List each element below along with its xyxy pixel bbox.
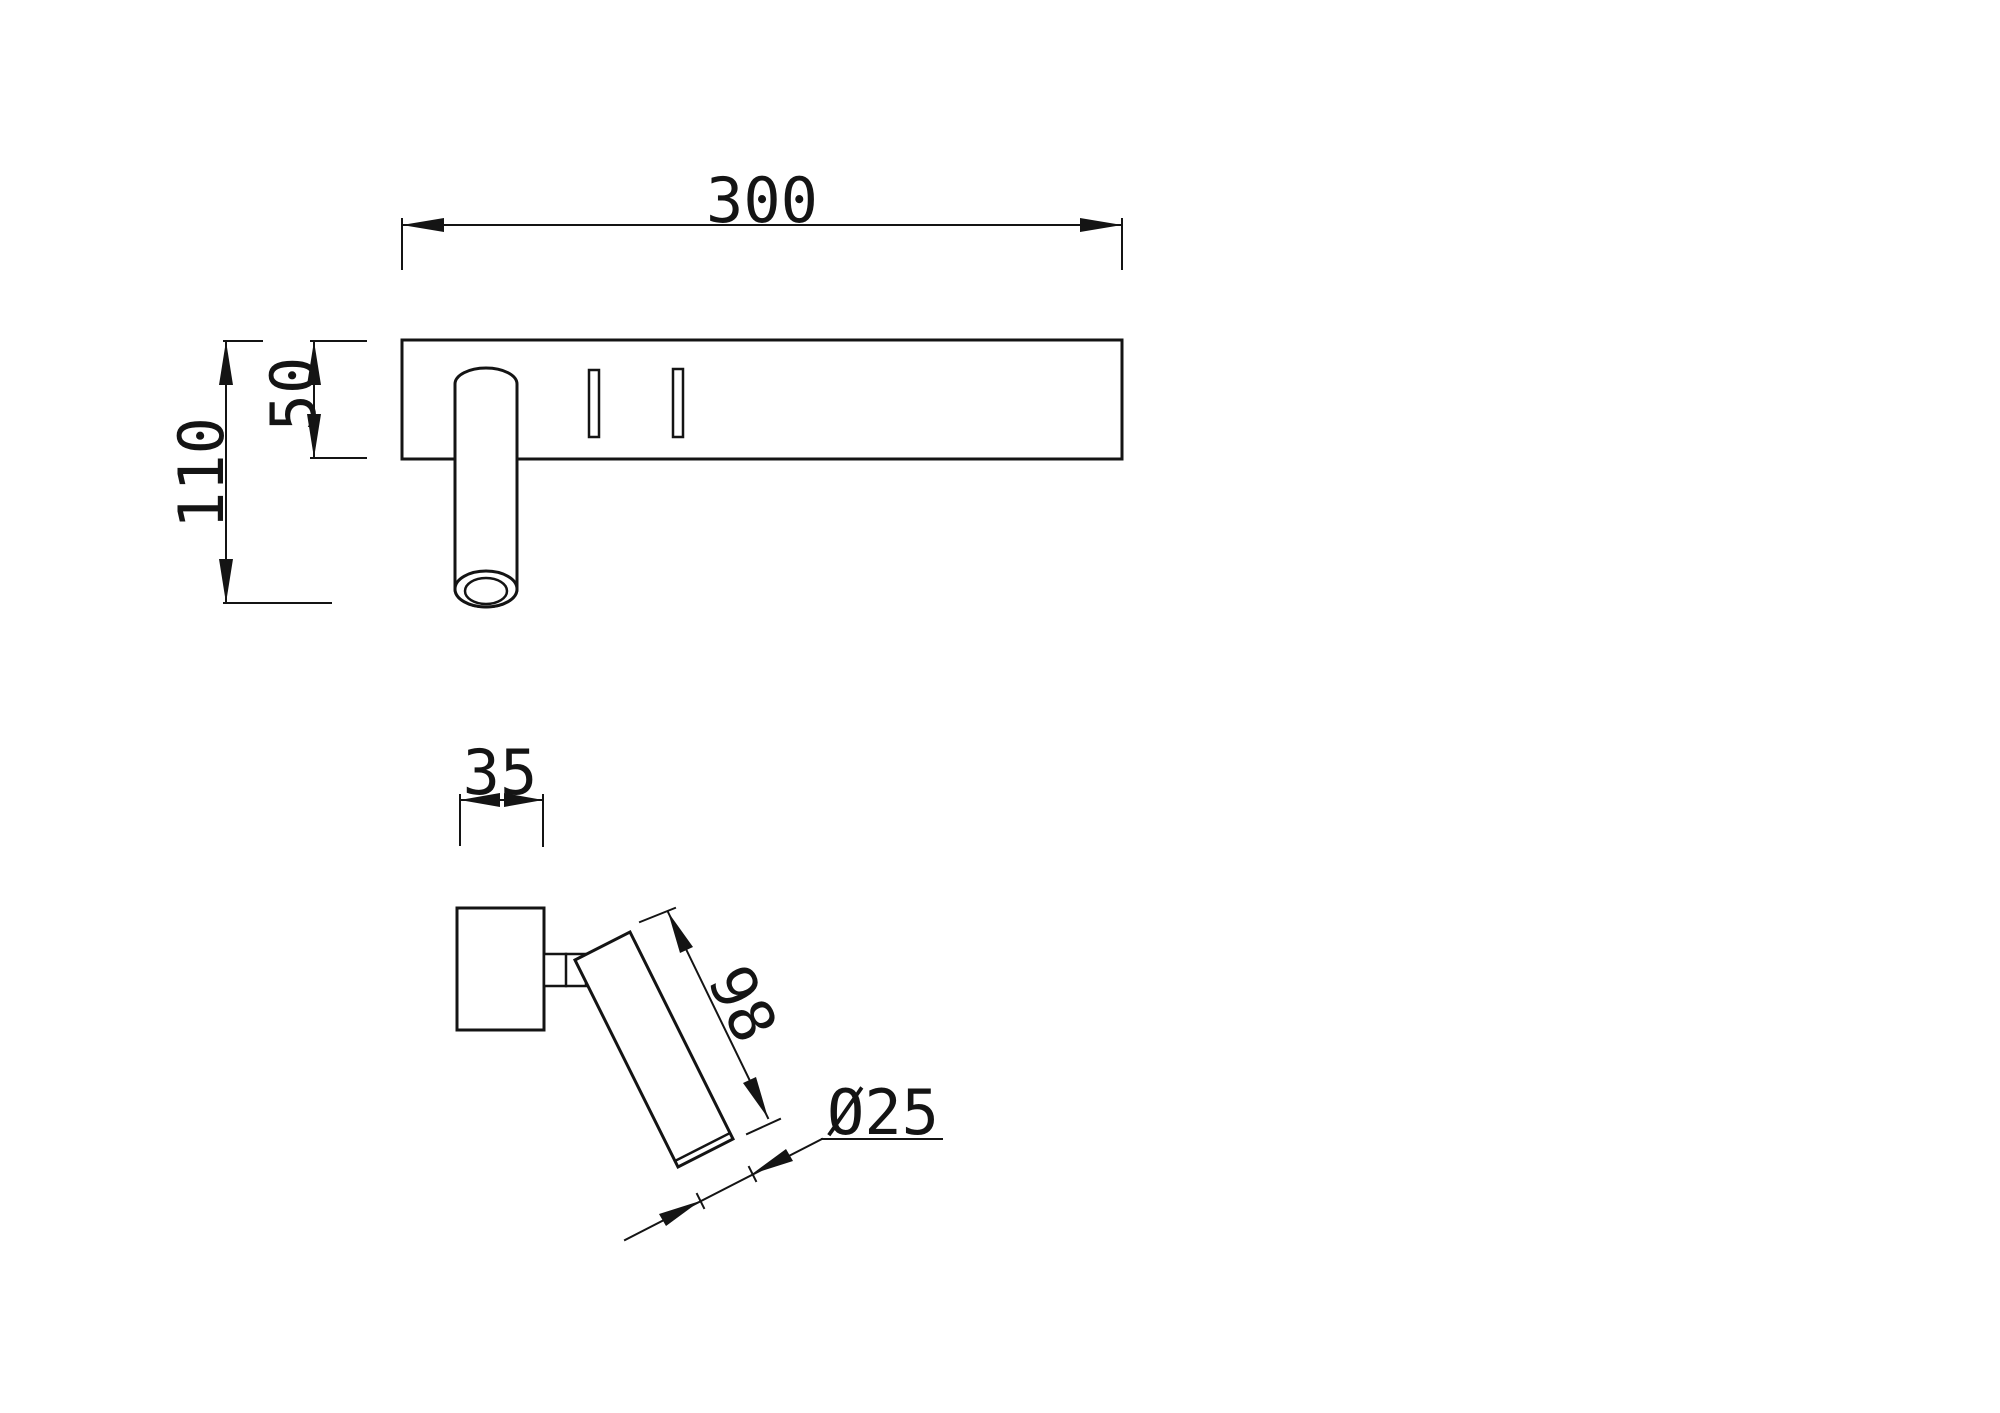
arrowhead-down [743, 1077, 768, 1118]
arrowhead-lower [659, 1201, 700, 1226]
arrowhead-right [1080, 218, 1122, 232]
technical-drawing-canvas [0, 0, 2000, 1413]
dim-plate-width-label: 300 [706, 170, 818, 232]
arrowhead-upper [752, 1149, 793, 1174]
arrowhead-left [402, 218, 444, 232]
arrowhead-down [219, 559, 233, 603]
dim-plate-height-label: 50 [263, 357, 325, 432]
tube-end-inner-rim [465, 578, 507, 604]
dimension-line [625, 1139, 822, 1240]
dim-tube-diameter-label: Ø25 [827, 1082, 939, 1144]
switch-slot-left [589, 370, 599, 437]
switch-slot-right [673, 369, 683, 437]
dim-plate-depth-label: 35 [463, 742, 538, 804]
arrowhead-up [668, 912, 693, 953]
technical-drawing-page: 300 110 50 35 98 Ø25 [0, 0, 2000, 1413]
dim-total-height-label: 110 [171, 417, 233, 529]
arrowhead-up [219, 341, 233, 385]
mounting-box-side [457, 908, 544, 1030]
front-view [402, 340, 1122, 607]
extension-tick-bottom [747, 1119, 780, 1134]
spotlight-tube-side [575, 932, 733, 1167]
